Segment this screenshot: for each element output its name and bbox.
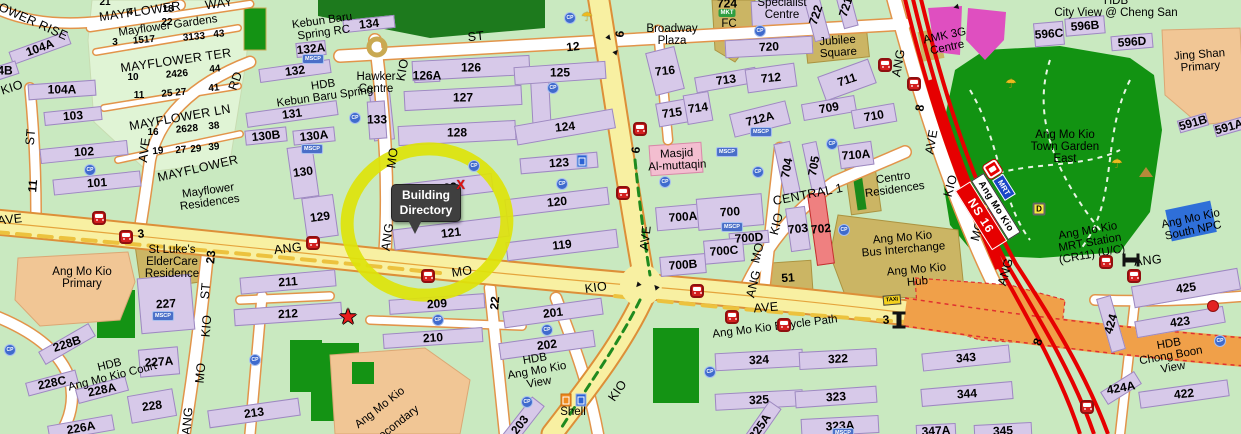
bus-stop-icon[interactable] xyxy=(421,269,435,283)
car-park-icon[interactable]: CP xyxy=(754,25,766,37)
playground-icon xyxy=(1139,167,1153,177)
direction-arrow-icon: ▲ xyxy=(603,32,616,45)
car-park-icon[interactable]: CP xyxy=(547,82,559,94)
multi-storey-car-park-icon[interactable]: MSCP xyxy=(716,147,738,157)
car-park-icon[interactable]: CP xyxy=(1214,335,1226,347)
bus-stop-icon[interactable] xyxy=(1127,269,1141,283)
star-marker-icon: ★ xyxy=(338,306,358,328)
bus-stop-icon[interactable] xyxy=(92,211,106,225)
taxi-stand-icon[interactable]: TAXI xyxy=(883,294,902,306)
multi-storey-car-park-icon[interactable]: MSCP xyxy=(152,311,174,321)
car-park-icon[interactable]: CP xyxy=(704,366,716,378)
bus-stop-icon[interactable] xyxy=(777,318,791,332)
car-park-icon[interactable]: CP xyxy=(556,178,568,190)
direction-arrow-icon: ▲ xyxy=(650,281,663,294)
car-park-icon[interactable]: CP xyxy=(349,112,361,124)
map-canvas[interactable]: MAYFLOWERWAYMayflower GardensMAYFLOWER T… xyxy=(0,0,1241,434)
direction-arrow-icon: ▲ xyxy=(950,2,961,13)
car-park-icon[interactable]: CP xyxy=(468,160,480,172)
multi-storey-car-park-icon[interactable]: MSCP xyxy=(302,54,324,64)
bus-stop-icon[interactable] xyxy=(633,122,647,136)
ev-charging-icon[interactable] xyxy=(576,394,587,407)
petrol-station-icon[interactable] xyxy=(561,394,572,407)
bus-stop-icon[interactable] xyxy=(616,186,630,200)
market-icon: MKT xyxy=(719,9,736,17)
car-park-icon[interactable]: CP xyxy=(826,138,838,150)
bus-stop-icon[interactable] xyxy=(690,284,704,298)
direction-arrow-icon: ▲ xyxy=(610,46,623,59)
bus-stop-icon[interactable] xyxy=(119,230,133,244)
close-icon[interactable]: X xyxy=(456,177,465,193)
road-barrier-icon xyxy=(1124,258,1139,263)
car-park-icon[interactable]: CP xyxy=(659,176,671,188)
car-park-icon[interactable]: CP xyxy=(541,324,553,336)
bus-stop-icon[interactable] xyxy=(878,58,892,72)
direction-arrow-icon: ▲ xyxy=(632,279,645,292)
car-park-icon[interactable]: CP xyxy=(838,224,850,236)
building-directory-tooltip[interactable]: Building Directory X xyxy=(391,184,461,222)
ev-charging-icon[interactable] xyxy=(577,155,588,168)
bus-stop-icon[interactable] xyxy=(1080,400,1094,414)
car-park-icon[interactable]: CP xyxy=(4,344,16,356)
car-park-icon[interactable]: CP xyxy=(432,314,444,326)
road-barrier-icon xyxy=(897,313,902,328)
multi-storey-car-park-icon[interactable]: MSCP xyxy=(832,428,854,434)
car-park-icon[interactable]: CP xyxy=(564,12,576,24)
car-park-icon[interactable]: CP xyxy=(84,164,96,176)
bus-stop-icon[interactable] xyxy=(907,77,921,91)
multi-storey-car-park-icon[interactable]: MSCP xyxy=(721,222,743,232)
multi-storey-car-park-icon[interactable]: MSCP xyxy=(750,127,772,137)
multi-storey-car-park-icon[interactable]: MSCP xyxy=(301,144,323,154)
car-park-icon[interactable]: CP xyxy=(249,354,261,366)
mrt-exit-d-icon[interactable]: D xyxy=(1033,203,1046,216)
bus-stop-icon[interactable] xyxy=(725,310,739,324)
tooltip-title: Building Directory xyxy=(400,188,453,217)
car-park-icon[interactable]: CP xyxy=(752,166,764,178)
bus-stop-icon[interactable] xyxy=(306,236,320,250)
shelter-icon: ☂ xyxy=(581,9,593,25)
bus-stop-icon[interactable] xyxy=(1099,255,1113,269)
shelter-icon: ☂ xyxy=(1111,156,1123,172)
shelter-icon: ☂ xyxy=(1005,76,1017,92)
icons-layer: CPCPCPCPCPCPCPCPCPCPCPCPCPCPCPCPCPCPMSCP… xyxy=(0,0,1241,434)
tooltip-pointer xyxy=(408,220,422,234)
car-park-icon[interactable]: CP xyxy=(521,396,533,408)
red-dot-marker-icon xyxy=(1207,300,1219,312)
